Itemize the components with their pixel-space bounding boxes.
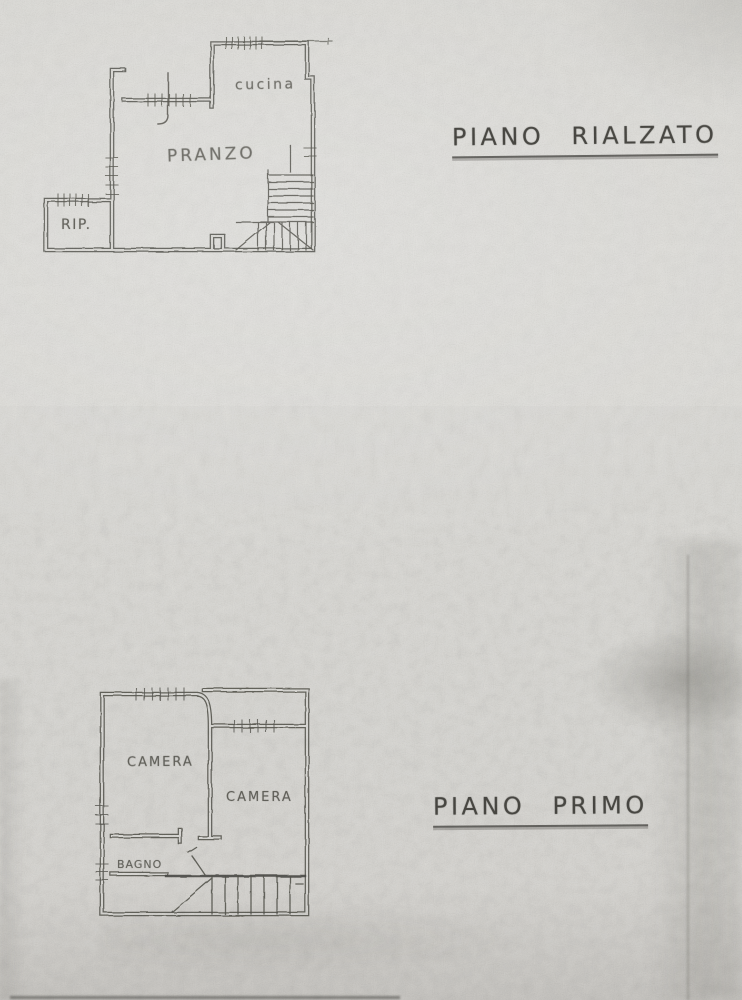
scanned-floorplan-page: cucina PRANZO RIP. CAMERA CAMERA BAGNO P… — [0, 0, 742, 1000]
scan-grain-coarse — [0, 0, 742, 1000]
